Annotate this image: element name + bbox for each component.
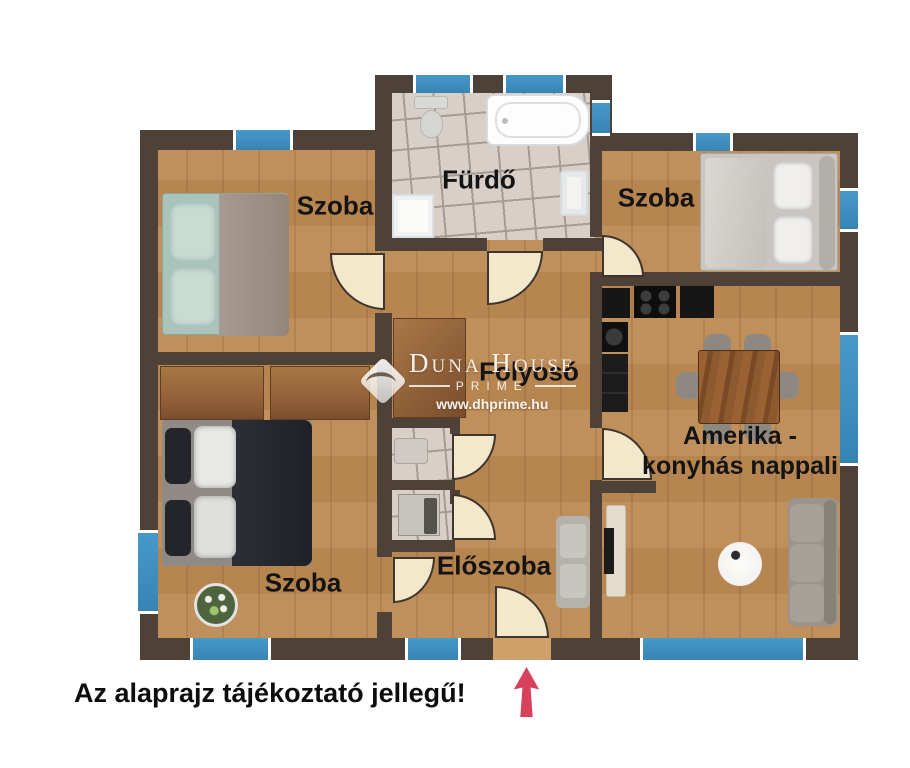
wall	[375, 75, 612, 93]
room-label-living-room: Amerika - konyhás nappali	[632, 422, 848, 481]
window	[413, 75, 473, 93]
bed-pillow	[165, 500, 191, 556]
duna-house-logo-icon	[359, 357, 407, 405]
bed-blanket	[705, 158, 767, 268]
wall	[377, 612, 392, 638]
kitchen-cabinet	[600, 354, 628, 412]
entry-bench	[556, 516, 590, 608]
bench-cushion	[560, 564, 586, 598]
washing-machine	[398, 494, 440, 536]
watermark-sub: PRIME	[409, 379, 576, 393]
room-label-bedroom-top-right: Szoba	[618, 183, 695, 214]
window	[138, 530, 158, 614]
window	[840, 188, 858, 232]
bed-pillow	[170, 268, 216, 326]
bathtub	[486, 94, 590, 146]
kitchen-stove	[634, 286, 676, 318]
bed-pillow	[194, 426, 236, 488]
window	[693, 133, 733, 151]
window	[592, 100, 610, 136]
window	[640, 638, 806, 660]
window	[233, 130, 293, 150]
bed-roll	[819, 156, 835, 270]
watermark-url: www.dhprime.hu	[409, 396, 576, 412]
wall	[377, 480, 455, 490]
entrance-arrow-icon	[513, 667, 540, 717]
window	[405, 638, 461, 660]
washing-machine-door	[424, 498, 437, 534]
bed-blanket	[232, 420, 312, 566]
watermark-brand: Duna House	[409, 350, 576, 377]
entrance-threshold	[493, 638, 551, 660]
wall	[377, 418, 455, 428]
bed-pillow	[170, 203, 216, 261]
wall	[543, 238, 607, 251]
plant	[194, 583, 238, 627]
wall	[590, 151, 602, 237]
shower-tray	[392, 194, 434, 238]
room-label-bedroom-bottom-left: Szoba	[265, 568, 342, 599]
tv	[604, 528, 614, 574]
room-label-bedroom-top-left: Szoba	[297, 191, 374, 222]
watermark: Duna House PRIME www.dhprime.hu	[366, 350, 576, 412]
bathtub-tap	[502, 118, 508, 124]
wall	[602, 481, 656, 493]
watermark-text: Duna House PRIME www.dhprime.hu	[409, 350, 576, 412]
sofa-cushion	[790, 584, 824, 622]
kitchen-sink	[600, 322, 628, 352]
bed-pillow	[165, 428, 191, 484]
kitchen-counter	[680, 286, 714, 318]
logo-wave-icon	[366, 372, 396, 394]
washbasin	[560, 170, 588, 216]
wall	[590, 480, 602, 638]
sofa-cushion	[790, 504, 824, 542]
disclaimer-caption: Az alaprajz tájékoztató jellegű!	[74, 678, 466, 709]
bed-blanket	[219, 194, 289, 336]
rug	[718, 542, 762, 586]
bed-pillow	[773, 162, 813, 210]
bed-top-right	[700, 153, 838, 271]
room-label-entry-hall: Előszoba	[437, 551, 551, 582]
sofa	[788, 498, 838, 626]
window	[190, 638, 271, 660]
kitchen-counter	[602, 288, 630, 318]
wc-sink	[394, 438, 428, 464]
sofa-back	[824, 500, 836, 624]
bench-cushion	[560, 524, 586, 558]
wall	[450, 418, 460, 434]
bed-pillow	[773, 216, 813, 264]
wall	[375, 238, 487, 251]
wardrobe	[160, 366, 264, 420]
dining-table	[698, 350, 780, 424]
room-label-bathroom: Fürdő	[442, 165, 516, 196]
toilet-bowl	[420, 110, 443, 138]
toilet	[414, 96, 448, 109]
wardrobe	[270, 366, 370, 420]
bed-top-left	[162, 193, 288, 335]
window	[503, 75, 566, 93]
wall	[590, 286, 602, 428]
wall	[140, 352, 392, 365]
wall	[375, 75, 392, 251]
sofa-cushion	[790, 544, 824, 582]
floorplan-canvas: Szoba Fürdő Szoba Folyosó Szoba Előszoba…	[0, 0, 910, 768]
bed-bottom-left	[162, 420, 312, 566]
bed-pillow	[194, 496, 236, 558]
